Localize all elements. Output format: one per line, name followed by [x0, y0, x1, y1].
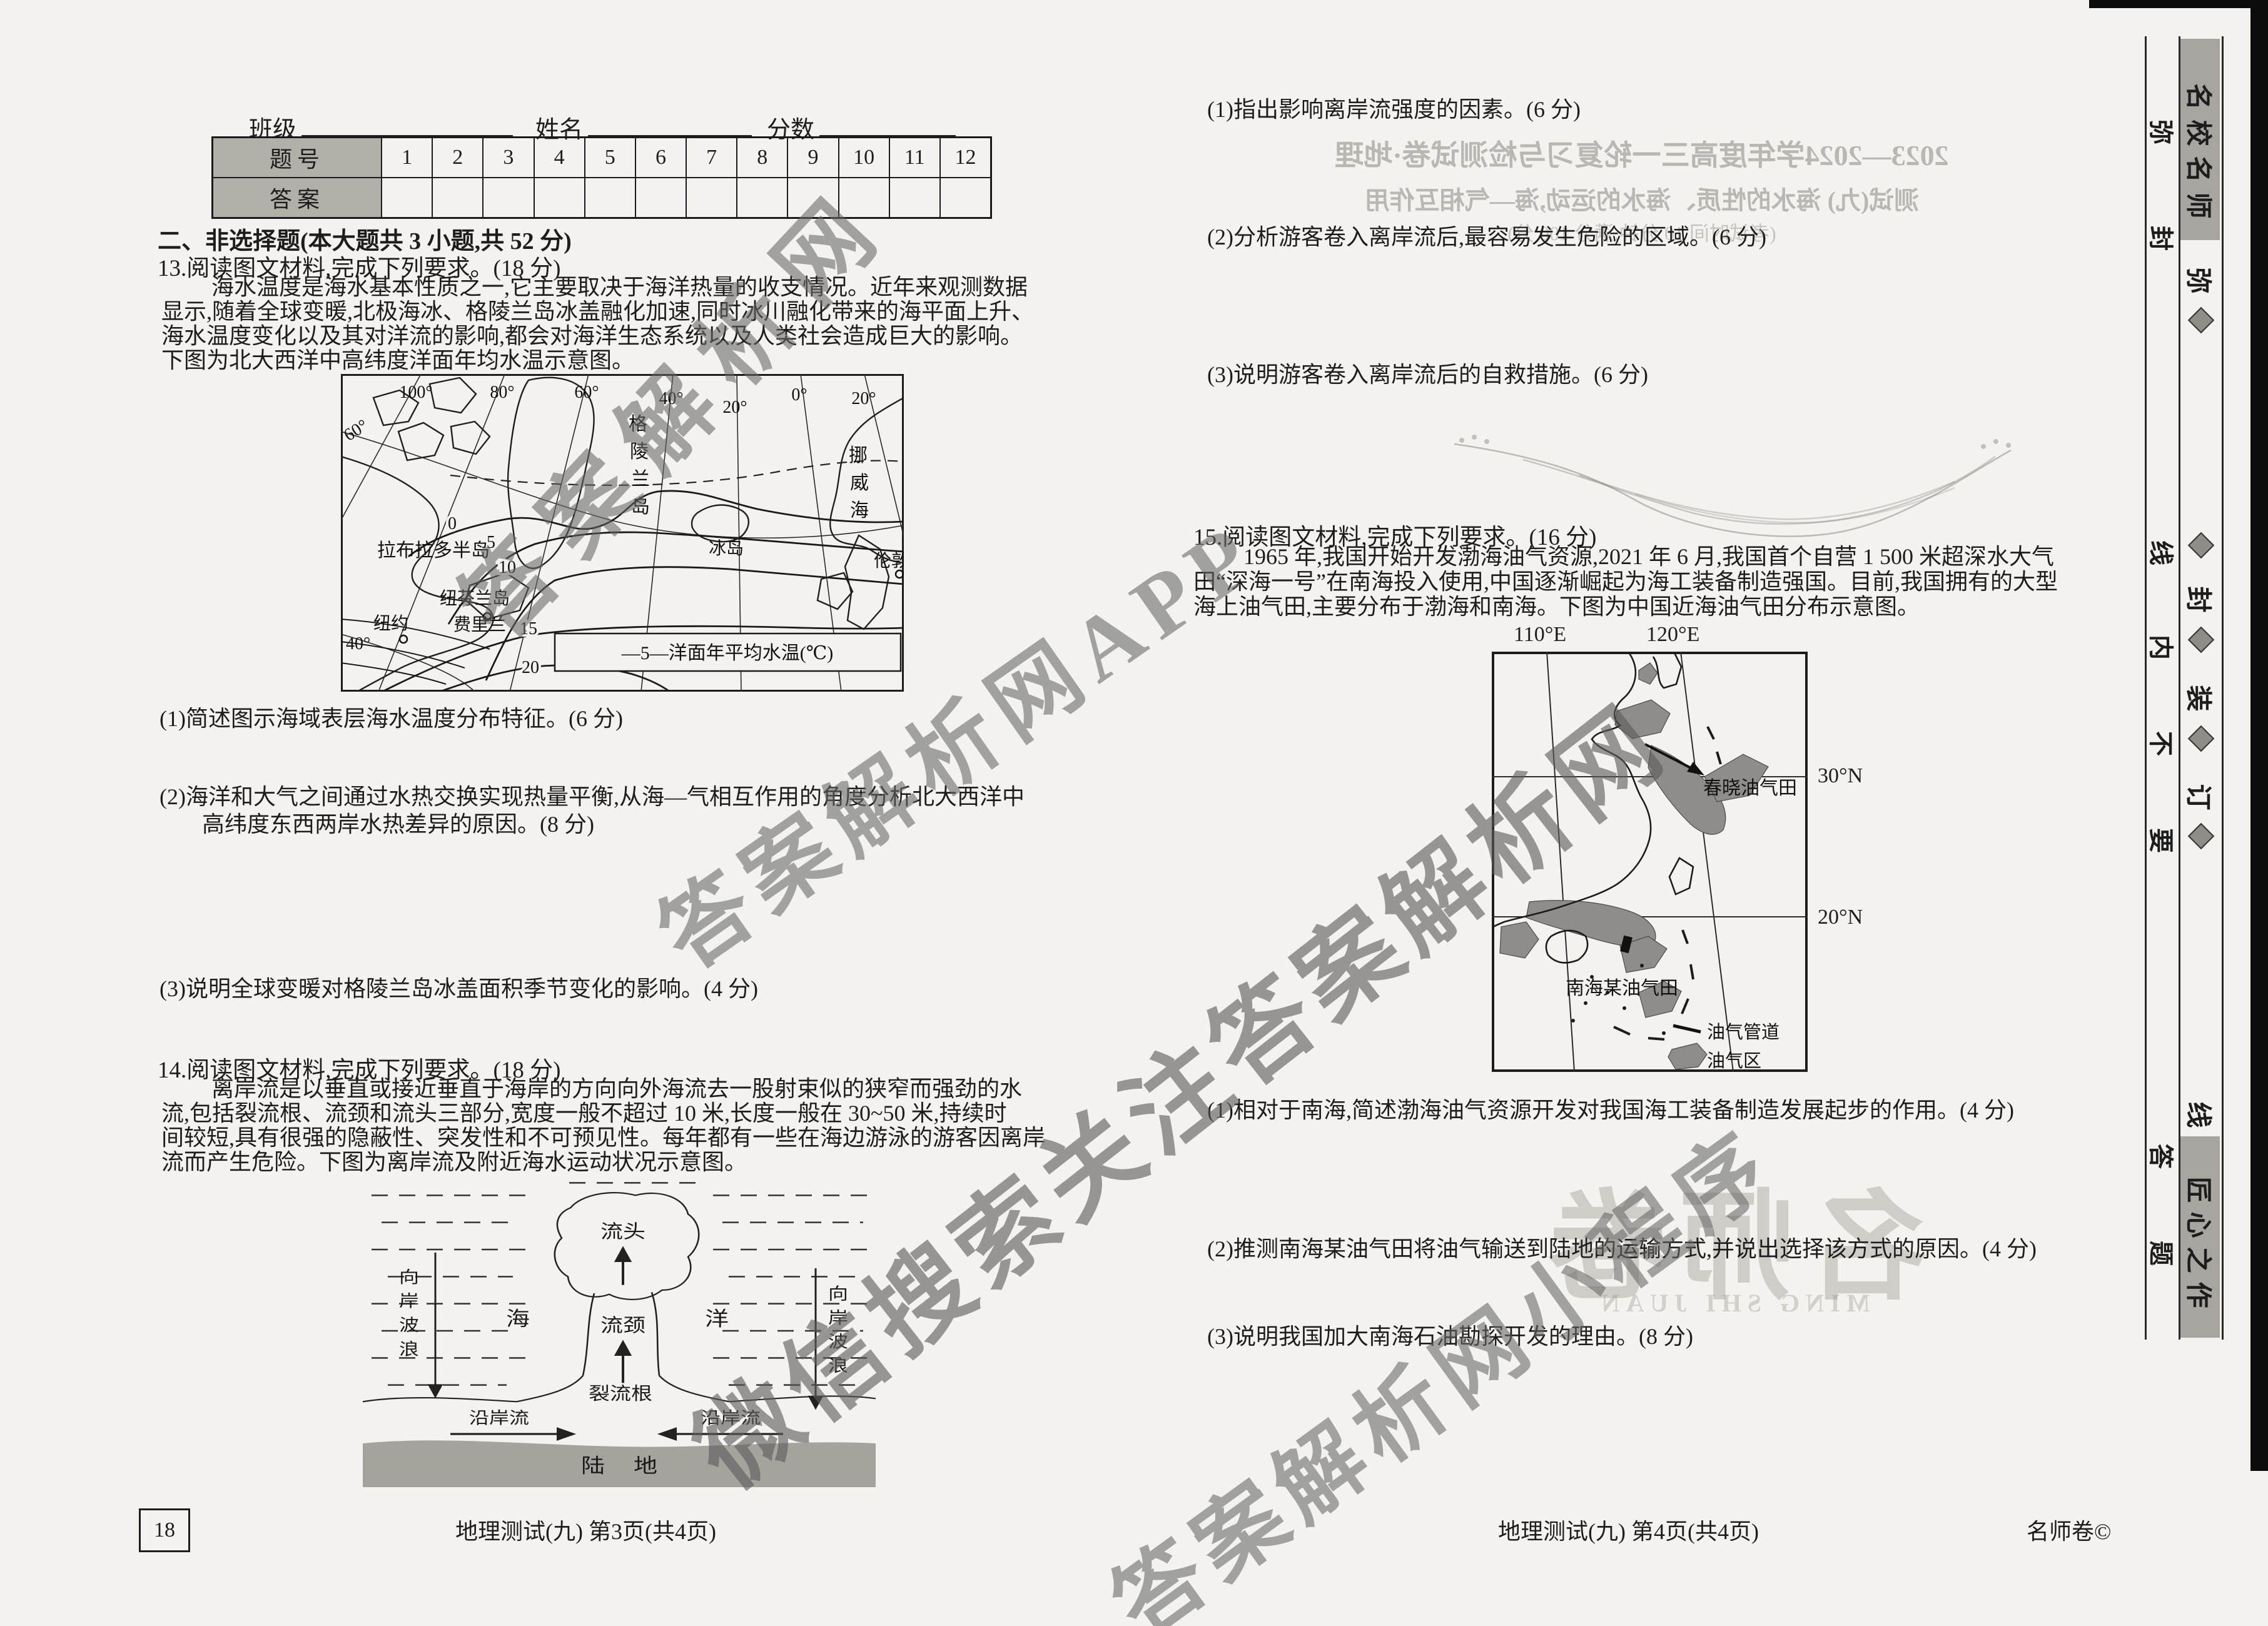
latitude-label-60: 60° [341, 416, 372, 445]
brand-label: 名师卷© [2027, 1513, 2111, 1546]
answer-cell[interactable] [482, 178, 533, 217]
q13-para-line: 海水温度变化以及其对洋流的影响,都会对海洋生态系统以及人类社会造成巨大的影响。 [161, 324, 1034, 348]
binding-outer-char: 装 [2182, 681, 2220, 716]
svg-text:向: 向 [399, 1268, 419, 1287]
svg-text:20°: 20° [851, 389, 876, 408]
binding-inner-char: 答 [2145, 1139, 2181, 1174]
answer-cell[interactable] [381, 178, 432, 217]
map15-lat-30: 30°N [1818, 764, 1863, 788]
map15-legend: 油气管道 油气区 [1668, 1022, 1779, 1071]
badge-top-char: 名 [2182, 152, 2220, 187]
q13-sub3: (3)说明全球变暖对格陵兰岛冰盖面积季节变化的影响。(4 分) [159, 971, 758, 1003]
nanhai-field-label: 南海某油气田 [1566, 978, 1678, 999]
answer-cell[interactable] [584, 178, 635, 217]
svg-text:威: 威 [850, 473, 869, 493]
question-number-cell: 6 [635, 138, 686, 177]
answer-cell[interactable] [889, 178, 939, 217]
q15-para-line: 1965 年,我国开始开发渤海油气资源,2021 年 6 月,我国首个自营 1 … [1193, 544, 2058, 569]
badge-top-char: 校 [2182, 116, 2220, 151]
page-number-box: 18 [139, 1508, 190, 1552]
question-number-cell: 10 [838, 138, 889, 177]
svg-text:海: 海 [850, 500, 869, 521]
q13-para-line: 下图为北大西洋中高纬度洋面年均水温示意图。 [161, 348, 1034, 373]
question-number-cell: 7 [686, 138, 736, 177]
q13-para-line: 海水温度是海水基本性质之一,它主要取决于海洋热量的收支情况。近年来观测数据 [161, 275, 1034, 300]
svg-text:地: 地 [634, 1455, 657, 1477]
svg-text:0: 0 [448, 514, 457, 533]
q15-para-line: 田“深海一号”在南海投入使用,中国逐渐崛起为海工装备制造强国。目前,我国拥有的大… [1193, 569, 2058, 594]
question-number-cell: 8 [736, 138, 787, 177]
badge-top-char: 师 [2182, 188, 2220, 223]
question-number-cell: 1 [381, 138, 432, 177]
binding-inner-char: 封 [2145, 221, 2181, 256]
table-header-answer: 答案 [213, 178, 381, 217]
binding-inner-char: 内 [2145, 630, 2181, 665]
binding-outer-char: 封 [2182, 582, 2220, 617]
badge-bottom-char: 心 [2182, 1208, 2220, 1243]
svg-text:洋: 洋 [705, 1308, 729, 1330]
binding-inner-char: 要 [2145, 823, 2181, 858]
diamond-icon [2188, 725, 2214, 752]
badge-top-char: 名 [2182, 79, 2220, 114]
svg-text:海: 海 [506, 1308, 530, 1330]
answer-cell[interactable] [534, 178, 584, 217]
map-legend: —5—洋面年平均水温(℃) [555, 634, 901, 671]
q13-sub1: (1)简述图示海域表层海水温度分布特征。(6 分) [159, 700, 623, 733]
bleed-title-line1: 2023—2024学年度高三一轮复习与检测试卷·地理 [1220, 133, 2064, 174]
diamond-icon [2188, 627, 2214, 653]
svg-text:—5—洋面年平均水温(℃): —5—洋面年平均水温(℃) [621, 643, 834, 664]
q14-sub2: (2)分析游客卷入离岸流后,最容易发生危险的区域。(6 分) [1207, 219, 1766, 251]
binding-inner-char: 题 [2145, 1236, 2181, 1271]
left-footer-text: 地理测试(九) 第3页(共4页) [455, 1513, 716, 1546]
binding-inner-char: 弥 [2145, 114, 2181, 149]
q14-para-line: 间较短,具有很强的隐蔽性、突发性和不可预见性。每年都有一些在海边游泳的游客因离岸 [161, 1126, 1045, 1150]
svg-text:波: 波 [399, 1316, 419, 1335]
map15-lon-120: 120°E [1646, 623, 1699, 647]
binding-outer-char: 订 [2182, 780, 2220, 815]
binding-outer-char: 弥 [2182, 263, 2220, 298]
q15-sub1: (1)相对于南海,简述渤海油气资源开发对我国海工装备制造发展起步的作用。(4 分… [1207, 1092, 2014, 1124]
binding-line-outer [2222, 36, 2224, 1340]
latitude-label-40: 40° [346, 634, 370, 654]
diamond-icon [2188, 532, 2214, 558]
svg-text:岸: 岸 [399, 1293, 419, 1311]
answer-cell[interactable] [939, 178, 990, 217]
scan-edge-top [2089, 0, 2268, 8]
question-number-cell: 2 [432, 138, 482, 177]
bleed-title-line2: 测试(九) 海水的性质、海水的运动,海—气相互作用 [1220, 180, 2064, 216]
svg-text:纽约: 纽约 [373, 614, 408, 634]
scan-edge-right [2250, 0, 2268, 1471]
q14-paragraph: 离岸流是以垂直或接近垂直于海岸的方向向外海流去一股射束似的狭窄而强劲的水 流,包… [161, 1077, 1045, 1174]
scanned-exam-sheet: 2023—2024学年度高三一轮复习与检测试卷·地理 测试(九) 海水的性质、海… [0, 0, 2268, 1626]
svg-text:陆: 陆 [581, 1455, 605, 1477]
question-number-cell: 12 [939, 138, 990, 177]
right-footer-text: 地理测试(九) 第4页(共4页) [1498, 1513, 1759, 1546]
map15-lat-20: 20°N [1818, 906, 1863, 929]
svg-text:沿岸流: 沿岸流 [469, 1409, 529, 1428]
badge-bottom-char: 作 [2182, 1278, 2220, 1313]
answer-cell[interactable] [635, 178, 686, 217]
answer-cell[interactable] [686, 178, 736, 217]
diamond-icon [2188, 307, 2214, 333]
q15-paragraph: 1965 年,我国开始开发渤海油气资源,2021 年 6 月,我国首个自营 1 … [1193, 544, 2058, 619]
q14-para-line: 流而产生危险。下图为离岸流及附近海水运动状况示意图。 [161, 1150, 1045, 1174]
binding-inner-char: 不 [2145, 726, 2181, 761]
q14-para-line: 离岸流是以垂直或接近垂直于海岸的方向向外海流去一股射束似的狭窄而强劲的水 [161, 1077, 1045, 1101]
svg-text:浪: 浪 [399, 1340, 419, 1359]
chunxiao-field-label: 春晓油气田 [1703, 778, 1797, 799]
svg-text:100°: 100° [399, 383, 432, 402]
diamond-icon [2188, 823, 2214, 849]
svg-text:20: 20 [522, 658, 539, 677]
q15-para-line: 海上油气田,主要分布于渤海和南海。下图为中国近海油气田分布示意图。 [1193, 594, 2058, 619]
svg-text:裂流根: 裂流根 [589, 1384, 652, 1404]
svg-text:0°: 0° [791, 385, 807, 405]
question-number-cell: 5 [584, 138, 635, 177]
badge-bottom-char: 之 [2182, 1243, 2220, 1278]
question-number-cell: 4 [534, 138, 584, 177]
svg-text:流头: 流头 [600, 1221, 645, 1242]
q13-paragraph: 海水温度是海水基本性质之一,它主要取决于海洋热量的收支情况。近年来观测数据 显示… [161, 275, 1034, 373]
answer-table-number-row: 题号 1 2 3 4 5 6 7 8 9 10 11 12 [213, 138, 990, 177]
q13-para-line: 显示,随着全球变暖,北极海冰、格陵兰岛冰盖融化加速,同时冰川融化带来的海平面上升… [161, 300, 1034, 324]
table-header-question: 题号 [213, 138, 381, 177]
svg-text:油气区: 油气区 [1707, 1051, 1761, 1071]
svg-text:流颈: 流颈 [600, 1315, 645, 1336]
binding-outer-char: 线 [2182, 1098, 2220, 1133]
svg-text:伦敦: 伦敦 [874, 551, 904, 571]
q14-para-line: 流,包括裂流根、流颈和流头三部分,宽度一般不超过 10 米,长度一般在 30~5… [161, 1101, 1045, 1126]
svg-text:冰岛: 冰岛 [709, 538, 744, 558]
watermark-4: 答案解析网小程序 [1081, 1093, 1797, 1626]
map15-lon-110: 110°E [1514, 623, 1566, 647]
svg-text:80°: 80° [490, 383, 514, 402]
binding-inner-char: 线 [2145, 535, 2181, 570]
badge-bottom-char: 匠 [2182, 1173, 2220, 1208]
svg-text:挪: 挪 [849, 445, 868, 466]
question-number-cell: 3 [482, 138, 533, 177]
question-number-cell: 11 [889, 138, 939, 177]
q14-sub1: (1)指出影响离岸流强度的因素。(6 分) [1207, 91, 1581, 124]
svg-text:油气管道: 油气管道 [1707, 1022, 1779, 1043]
q14-sub3: (3)说明游客卷入离岸流后的自救措施。(6 分) [1207, 356, 1648, 389]
answer-cell[interactable] [432, 178, 482, 217]
